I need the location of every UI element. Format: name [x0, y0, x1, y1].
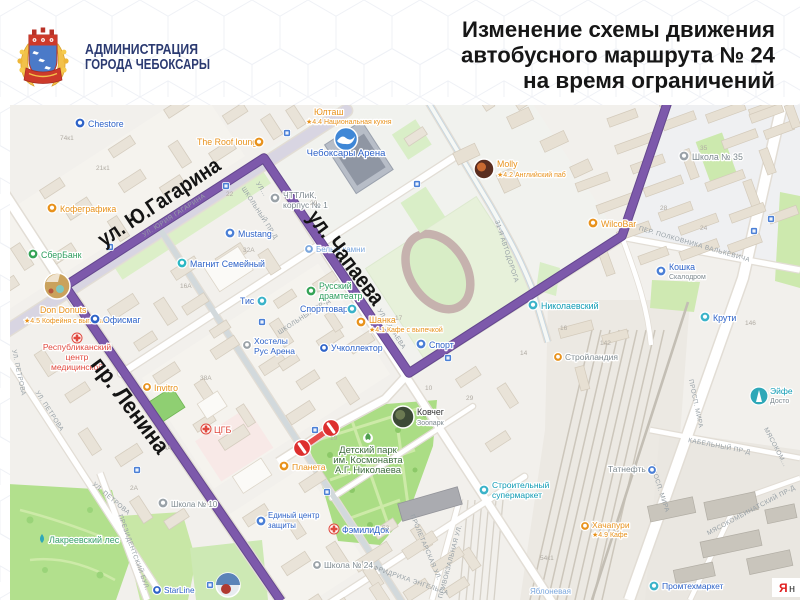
svg-text:22: 22 — [226, 191, 234, 198]
svg-text:А.Г. Николаева: А.Г. Николаева — [335, 465, 402, 476]
svg-text:WilcoBar: WilcoBar — [601, 219, 636, 229]
svg-text:74к1: 74к1 — [60, 135, 74, 142]
svg-text:н: н — [789, 583, 795, 595]
svg-text:Ковчег: Ковчег — [417, 407, 444, 417]
svg-text:Школа № 10: Школа № 10 — [171, 500, 218, 509]
svg-text:Юлташ: Юлташ — [314, 107, 344, 117]
svg-text:Спорт: Спорт — [429, 340, 454, 350]
svg-text:16: 16 — [560, 325, 568, 332]
svg-text:Республиканский: Республиканский — [43, 342, 111, 352]
svg-text:Офисмаг: Офисмаг — [103, 315, 141, 325]
svg-text:★4.4 Национальная кухня: ★4.4 Национальная кухня — [306, 118, 392, 126]
svg-text:2А: 2А — [130, 485, 139, 492]
svg-text:★4.9 Кафе: ★4.9 Кафе — [592, 531, 628, 539]
svg-text:★4.2 Английский паб: ★4.2 Английский паб — [497, 171, 566, 179]
svg-text:Лакреевский лес: Лакреевский лес — [49, 535, 120, 545]
svg-text:Чебоксары Арена: Чебоксары Арена — [307, 148, 386, 159]
svg-text:АДМИНИСТРАЦИЯ: АДМИНИСТРАЦИЯ — [85, 42, 198, 58]
svg-text:29: 29 — [466, 395, 474, 402]
svg-text:Стройландия: Стройландия — [565, 352, 618, 362]
svg-text:Тис: Тис — [240, 296, 255, 306]
svg-text:Крути: Крути — [713, 313, 736, 323]
svg-text:StarLine: StarLine — [164, 586, 195, 595]
svg-text:Школа № 24: Школа № 24 — [324, 560, 373, 570]
svg-text:Кошка: Кошка — [669, 262, 695, 272]
svg-text:Яблоневая: Яблоневая — [530, 587, 571, 596]
svg-text:Планета: Планета — [292, 462, 326, 472]
svg-text:центр: центр — [66, 352, 89, 362]
svg-text:19: 19 — [330, 435, 338, 442]
svg-text:Кофеграфика: Кофеграфика — [60, 204, 116, 214]
svg-text:защиты: защиты — [268, 521, 296, 530]
svg-text:54к1: 54к1 — [540, 555, 554, 562]
svg-text:35: 35 — [700, 145, 708, 152]
svg-text:Я: Я — [779, 581, 788, 595]
svg-text:Магнит Семейный: Магнит Семейный — [190, 259, 265, 269]
svg-text:Зоопарк: Зоопарк — [417, 420, 445, 427]
svg-text:32А: 32А — [243, 247, 255, 254]
svg-text:38А: 38А — [200, 375, 212, 382]
svg-text:Скалодром: Скалодром — [669, 274, 706, 281]
svg-text:Промтехмаркет: Промтехмаркет — [662, 581, 724, 591]
svg-text:Изменение схемы движения: Изменение схемы движения — [462, 17, 775, 42]
svg-text:The Roof lounge: The Roof lounge — [197, 137, 262, 147]
svg-text:14: 14 — [520, 350, 528, 357]
svg-text:Эйфе: Эйфе — [770, 386, 793, 396]
svg-text:Русский: Русский — [319, 281, 352, 291]
svg-text:Шанка: Шанка — [369, 315, 396, 325]
svg-text:16А: 16А — [180, 283, 192, 290]
svg-text:супермаркет: супермаркет — [492, 490, 542, 500]
svg-text:Спорттовары: Спорттовары — [300, 304, 354, 314]
svg-text:Николаевский: Николаевский — [541, 301, 599, 311]
svg-text:Школа № 35: Школа № 35 — [692, 152, 743, 162]
svg-text:Molly: Molly — [497, 159, 518, 169]
svg-text:драмтеатр: драмтеатр — [319, 291, 363, 301]
svg-text:ЧТТЛиК,: ЧТТЛиК, — [283, 190, 317, 200]
svg-text:Chestore: Chestore — [88, 119, 124, 129]
svg-text:Татнефть: Татнефть — [608, 464, 646, 474]
svg-text:Хостелы: Хостелы — [254, 336, 288, 346]
svg-text:Invitro: Invitro — [154, 383, 178, 393]
svg-text:24: 24 — [700, 225, 708, 232]
svg-text:Don Donuts: Don Donuts — [40, 305, 87, 315]
svg-text:28: 28 — [660, 205, 668, 212]
svg-text:29: 29 — [310, 200, 318, 207]
svg-text:10: 10 — [425, 385, 433, 392]
svg-text:ЦГБ: ЦГБ — [214, 425, 232, 435]
svg-text:21к1: 21к1 — [96, 165, 110, 172]
svg-text:Mustang: Mustang — [238, 229, 272, 239]
svg-text:Рус Арена: Рус Арена — [254, 346, 295, 356]
svg-text:146: 146 — [745, 320, 756, 327]
svg-text:автобусного маршрута № 24: автобусного маршрута № 24 — [461, 43, 776, 68]
svg-text:Учколлектор: Учколлектор — [331, 343, 383, 353]
svg-text:★4.1 Кафе с выпечкой: ★4.1 Кафе с выпечкой — [369, 326, 443, 334]
svg-text:ГОРОДА ЧЕБОКСАРЫ: ГОРОДА ЧЕБОКСАРЫ — [85, 57, 210, 73]
svg-text:53: 53 — [382, 525, 390, 532]
svg-text:Досто: Досто — [770, 398, 789, 405]
svg-text:Хачапури: Хачапури — [592, 520, 630, 530]
svg-text:142: 142 — [600, 340, 611, 347]
svg-text:СберБанк: СберБанк — [41, 250, 82, 260]
svg-text:Единый центр: Единый центр — [268, 511, 320, 520]
svg-text:Строительный: Строительный — [492, 480, 550, 490]
svg-text:на время ограничений: на время ограничений — [523, 68, 775, 93]
svg-text:17: 17 — [395, 315, 403, 322]
